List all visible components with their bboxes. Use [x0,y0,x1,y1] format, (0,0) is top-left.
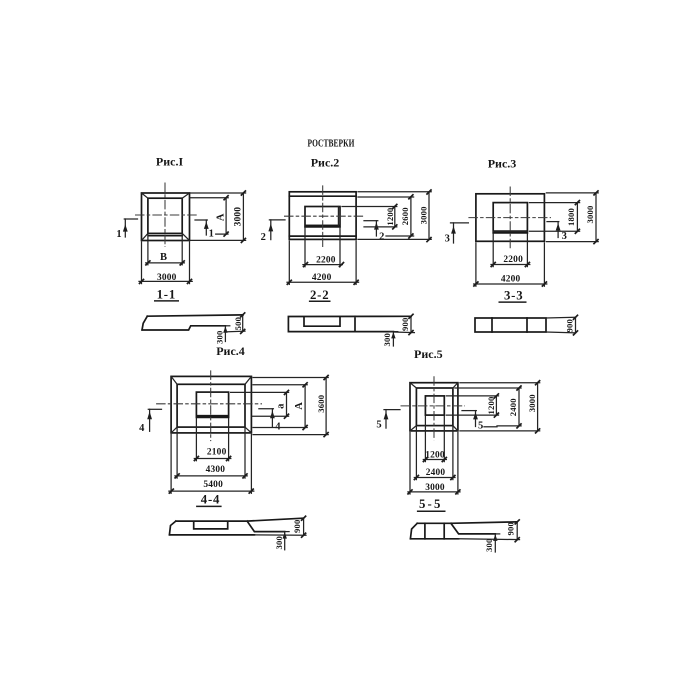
svg-text:1800: 1800 [566,208,576,226]
svg-text:3000: 3000 [527,394,537,412]
svg-text:5: 5 [376,420,381,431]
svg-text:900: 900 [292,520,302,534]
svg-text:2600: 2600 [400,207,410,225]
svg-text:4200: 4200 [501,275,521,285]
svg-text:2400: 2400 [508,398,518,416]
svg-text:2: 2 [261,232,266,243]
svg-text:2: 2 [379,231,384,242]
svg-text:5: 5 [478,421,483,432]
svg-text:4-4: 4-4 [201,493,220,507]
svg-text:1200: 1200 [385,208,395,226]
svg-text:1200: 1200 [425,451,445,461]
svg-text:1-1: 1-1 [157,288,176,302]
svg-text:2-2: 2-2 [310,288,329,302]
svg-text:a: a [276,403,287,409]
svg-text:3000: 3000 [425,483,445,493]
svg-text:Рис.5: Рис.5 [414,347,443,361]
svg-text:3: 3 [445,233,450,244]
svg-text:Рис.2: Рис.2 [311,156,340,170]
svg-text:3-3: 3-3 [504,289,523,303]
svg-text:900: 900 [565,319,575,333]
svg-text:300: 300 [382,333,392,347]
svg-text:500: 500 [233,317,243,331]
svg-text:Рис.4: Рис.4 [216,344,245,358]
svg-text:1200: 1200 [486,397,496,415]
svg-text:300: 300 [274,536,284,550]
svg-text:5400: 5400 [203,480,223,490]
svg-text:3000: 3000 [585,206,595,224]
svg-text:2200: 2200 [316,255,336,265]
svg-text:4: 4 [139,423,145,434]
svg-text:2400: 2400 [426,468,446,478]
svg-text:1: 1 [209,228,214,239]
svg-text:3600: 3600 [316,395,326,413]
svg-text:4300: 4300 [206,465,226,475]
svg-text:3000: 3000 [157,273,177,283]
svg-text:Рис.I: Рис.I [156,155,184,169]
svg-text:3000: 3000 [234,207,244,227]
svg-text:900: 900 [400,317,410,331]
svg-text:300: 300 [484,539,494,553]
svg-text:2100: 2100 [207,448,227,458]
svg-text:4200: 4200 [312,273,332,283]
svg-text:1: 1 [116,229,121,240]
svg-text:2200: 2200 [503,255,523,265]
svg-text:900: 900 [506,522,516,536]
svg-text:B: B [160,252,167,263]
svg-text:A: A [215,213,226,221]
svg-text:5-5: 5-5 [419,497,443,511]
svg-text:300: 300 [214,330,224,344]
svg-text:3000: 3000 [418,206,428,224]
svg-text:РОСТВЕРКИ: РОСТВЕРКИ [308,137,355,149]
svg-text:A: A [294,402,305,410]
svg-text:3: 3 [562,231,567,242]
svg-text:Рис.3: Рис.3 [488,157,517,171]
